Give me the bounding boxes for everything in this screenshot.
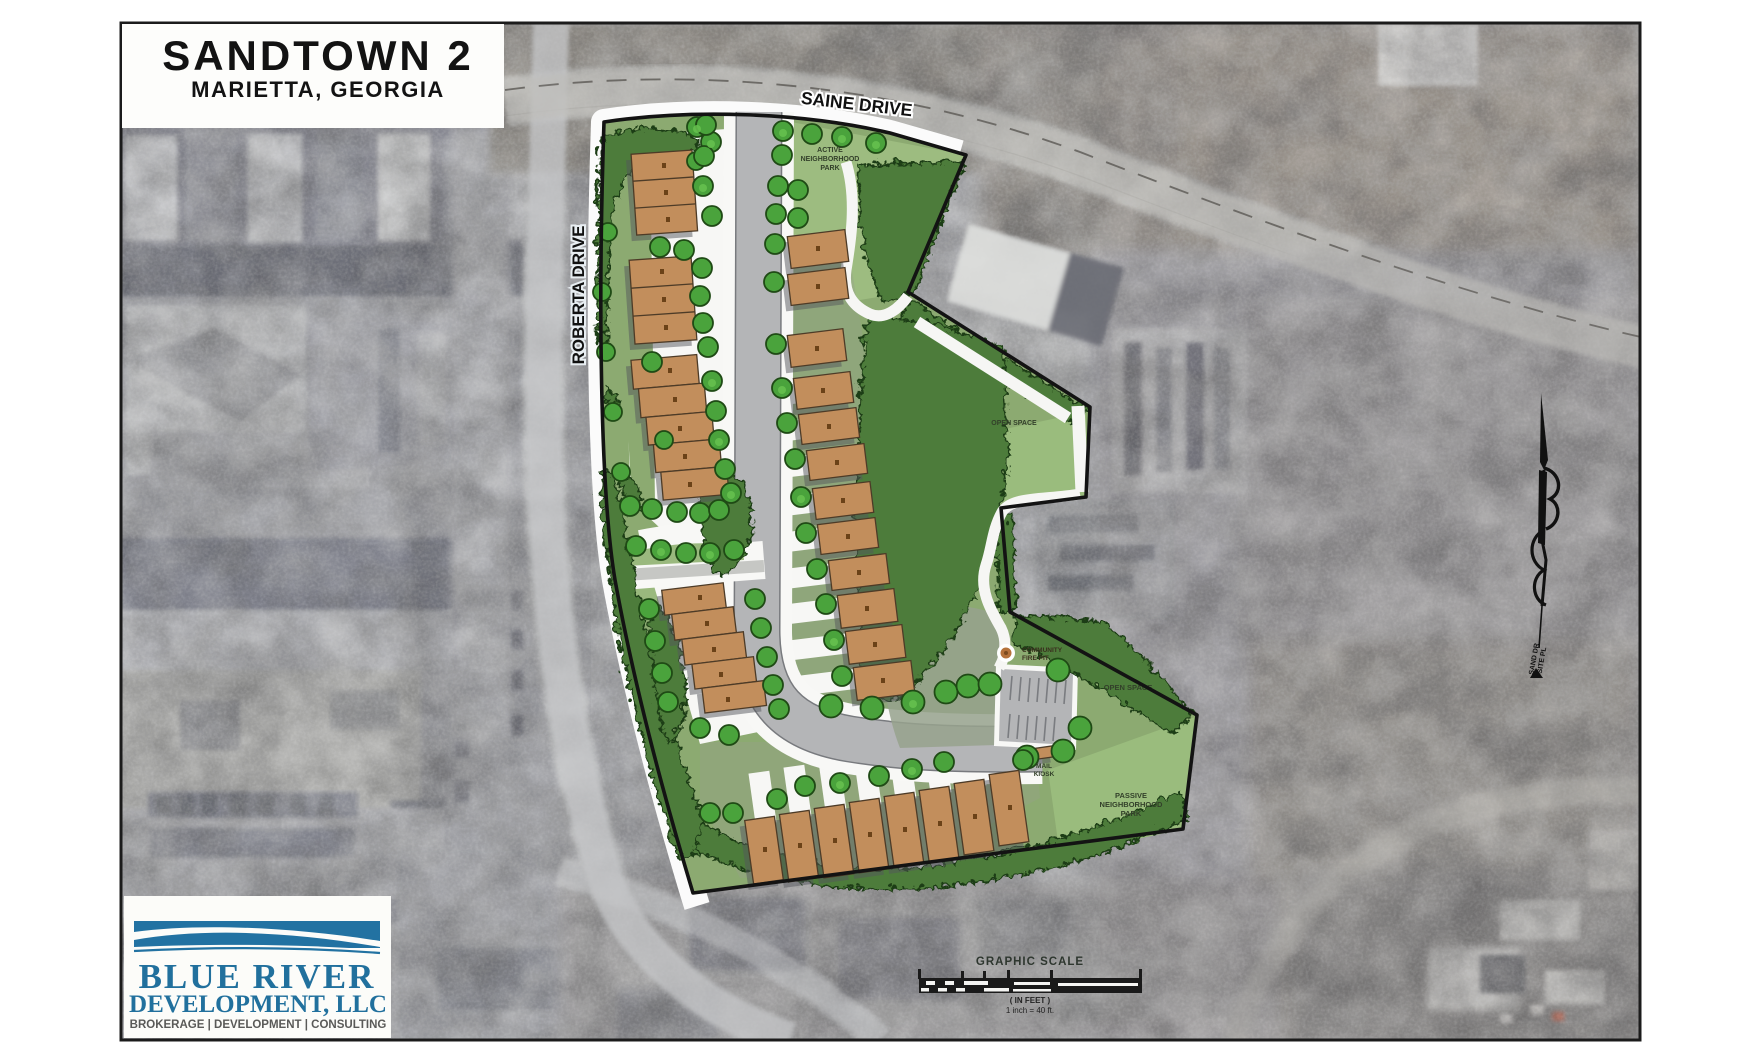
svg-text:( IN FEET ): ( IN FEET ) <box>1010 996 1051 1005</box>
svg-text:1 inch = 40 ft.: 1 inch = 40 ft. <box>1006 1006 1054 1015</box>
svg-text:ROBERTA DRIVE: ROBERTA DRIVE <box>569 226 588 365</box>
svg-text:SANDTOWN 2: SANDTOWN 2 <box>162 32 474 79</box>
svg-text:FIRE PIT: FIRE PIT <box>1022 655 1049 662</box>
svg-text:DEVELOPMENT, LLC: DEVELOPMENT, LLC <box>129 991 387 1018</box>
svg-text:BROKERAGE | DEVELOPMENT | CONS: BROKERAGE | DEVELOPMENT | CONSULTING <box>130 1019 387 1031</box>
svg-text:MAIL: MAIL <box>1036 763 1052 770</box>
svg-text:COMMUNITY: COMMUNITY <box>1022 647 1063 654</box>
svg-text:NEIGHBORHOOD: NEIGHBORHOOD <box>1100 800 1164 809</box>
svg-text:PASSIVE: PASSIVE <box>1115 791 1147 800</box>
svg-text:OPEN SPACE: OPEN SPACE <box>991 420 1037 427</box>
svg-text:PARK: PARK <box>1121 809 1142 818</box>
svg-text:KIOSK: KIOSK <box>1034 771 1055 778</box>
svg-text:GRAPHIC SCALE: GRAPHIC SCALE <box>976 956 1084 968</box>
svg-text:PARK: PARK <box>820 165 839 172</box>
svg-text:MARIETTA, GEORGIA: MARIETTA, GEORGIA <box>191 77 445 102</box>
svg-text:ACTIVE: ACTIVE <box>817 147 843 154</box>
svg-text:NEIGHBORHOOD: NEIGHBORHOOD <box>801 156 860 163</box>
